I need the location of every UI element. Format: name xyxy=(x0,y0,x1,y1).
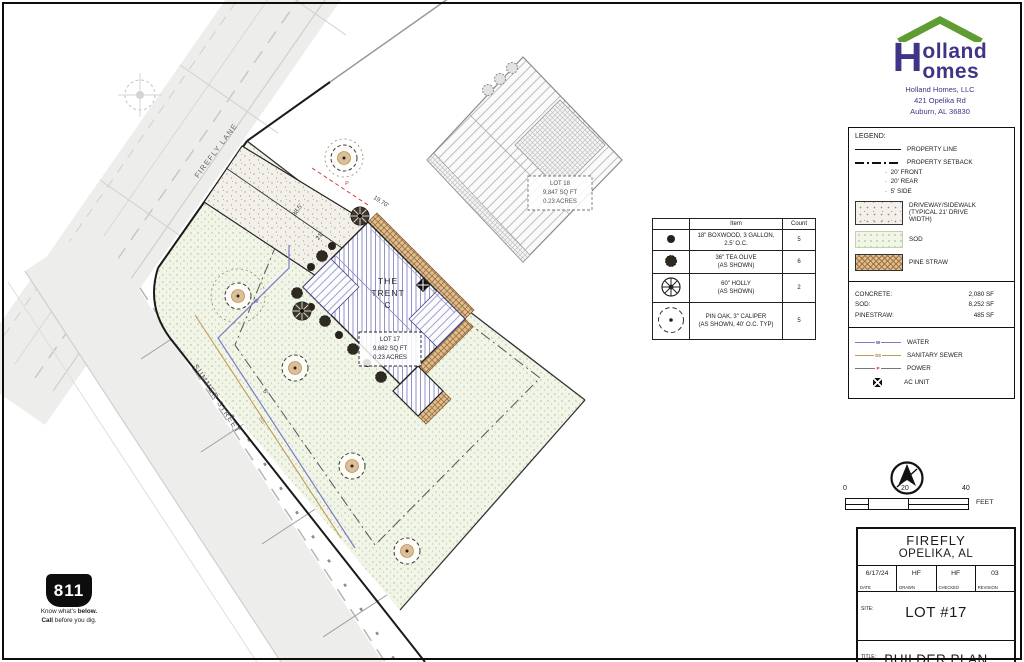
title-row: TITLE: BUILDER PLAN xyxy=(858,652,1014,662)
legend-power: P POWER xyxy=(855,365,1008,372)
company-name: Holland Homes, LLC xyxy=(862,85,1018,96)
svg-text:LOT 18: LOT 18 xyxy=(550,181,571,187)
count-header: Count xyxy=(783,219,816,230)
legend-sewer: SS SANITARY SEWER xyxy=(855,352,1008,359)
pine-straw-swatch xyxy=(855,254,903,271)
logo-wordmark: H olland omes xyxy=(862,41,1018,81)
company-street: 421 Opelika Rd xyxy=(862,96,1018,107)
scale-bar-box xyxy=(845,498,969,510)
scale-bar: 0 20 40 FEET xyxy=(836,485,1020,517)
svg-text:0.23 ACRES: 0.23 ACRES xyxy=(373,355,407,361)
area-row: PINESTRAW:485 SF xyxy=(855,312,1008,319)
svg-text:0.23 ACRES: 0.23 ACRES xyxy=(543,199,577,205)
holland-homes-logo: H olland omes Holland Homes, LLC 421 Ope… xyxy=(862,16,1018,118)
lot17-tag: LOT 17 9,682 SQ FT 0.23 ACRES xyxy=(359,332,421,366)
scale-tick-0: 0 xyxy=(843,485,847,492)
area-row: SOD:8,252 SF xyxy=(855,301,1008,308)
svg-text:LOT 17: LOT 17 xyxy=(380,337,401,343)
table-row: 60" HOLLY (AS SHOWN) 2 xyxy=(653,274,816,303)
scale-tick-40: 40 xyxy=(962,485,970,492)
drawn-cell: HF DRAWN xyxy=(897,566,936,591)
legend-ac: AC UNIT xyxy=(855,378,1008,387)
legend-property-setback: PROPERTY SETBACK xyxy=(855,159,1008,166)
legend-water: W WATER xyxy=(855,339,1008,346)
svg-text:C: C xyxy=(384,300,391,310)
legend-symbols-section: LEGEND: PROPERTY LINE PROPERTY SETBACK ·… xyxy=(848,127,1015,283)
power-marker: P xyxy=(345,181,349,187)
legend-property-line: PROPERTY LINE xyxy=(855,146,1008,153)
legend-heading: LEGEND: xyxy=(855,133,1008,140)
company-city: Auburn, AL 36830 xyxy=(862,107,1018,118)
checked-cell: HF CHECKED xyxy=(937,566,976,591)
boxwood-icon xyxy=(664,232,678,246)
logo-h: H xyxy=(893,41,923,75)
project-name-row: FIREFLY OPELIKA, AL xyxy=(858,529,1014,566)
legend-areas-section: CONCRETE:2,080 SF SOD:8,252 SF PINESTRAW… xyxy=(848,281,1015,328)
title-block: FIREFLY OPELIKA, AL 6/17/24 DATE HF DRAW… xyxy=(856,527,1016,662)
water-marker: W xyxy=(253,299,259,305)
svg-text:TRENT: TRENT xyxy=(371,288,404,298)
legend: LEGEND: PROPERTY LINE PROPERTY SETBACK ·… xyxy=(848,127,1015,399)
property-line-swatch xyxy=(855,149,901,150)
ac-unit-swatch xyxy=(873,378,882,387)
setback-bullets: · 20' FRONT · 20' REAR · 5' SIDE xyxy=(885,169,1008,195)
svg-text:9,682 SQ FT: 9,682 SQ FT xyxy=(373,346,408,352)
svg-text:9,847 SQ FT: 9,847 SQ FT xyxy=(543,190,578,196)
area-row: CONCRETE:2,080 SF xyxy=(855,291,1008,298)
title-label: TITLE: xyxy=(861,654,876,660)
site-row: SITE: LOT #17 xyxy=(858,604,1014,641)
legend-driveway: DRIVEWAY/SIDEWALK (TYPICAL 21' DRIVE WID… xyxy=(855,201,1008,225)
call-811-logo: 811 Know what's below. Call before you d… xyxy=(28,574,110,625)
table-row: PIN OAK, 3" CALIPER (AS SHOWN, 40' O.C. … xyxy=(653,303,816,340)
site-value: LOT #17 xyxy=(858,604,1014,621)
setback-line-swatch xyxy=(855,162,901,164)
tea-olive-icon xyxy=(663,253,679,269)
legend-pine-straw: PINE STRAW xyxy=(855,254,1008,271)
table-row: 18" BOXWOOD, 3 GALLON, 2.5' O.C. 5 xyxy=(653,230,816,251)
project-location: OPELIKA, AL xyxy=(858,548,1014,560)
legend-sod: SOD xyxy=(855,231,1008,248)
revision-cell: 03 REVISION xyxy=(976,566,1014,591)
811-badge-icon: 811 xyxy=(46,574,92,607)
driveway-swatch xyxy=(855,201,903,225)
date-cell: 6/17/24 DATE xyxy=(858,566,897,591)
item-header: Item xyxy=(690,219,783,230)
sheet-title: BUILDER PLAN xyxy=(858,652,1014,662)
power-line-swatch: P xyxy=(855,366,901,371)
pin-oak-icon xyxy=(656,305,686,335)
holly-icon xyxy=(660,276,682,298)
project-name: FIREFLY xyxy=(858,533,1014,548)
plan-sheet: W SS P 38.5' 21' 19.70' 6' FIREFLY LANE … xyxy=(0,0,1024,662)
revision-row: 6/17/24 DATE HF DRAWN HF CHECKED 03 REVI… xyxy=(858,566,1014,592)
sewer-line-swatch: SS xyxy=(855,353,901,358)
scale-tick-20: 20 xyxy=(901,485,909,492)
plant-schedule-table: Item Count 18" BOXWOOD, 3 GALLON, 2.5' O… xyxy=(652,218,816,340)
table-row: 36" TEA OLIVE (AS SHOWN) 6 xyxy=(653,251,816,274)
site-label: SITE: xyxy=(861,606,874,612)
table-header-row: Item Count xyxy=(653,219,816,230)
legend-utilities-section: W WATER SS SANITARY SEWER P POWER AC UNI… xyxy=(848,327,1015,399)
svg-text:THE: THE xyxy=(378,276,398,286)
sod-swatch xyxy=(855,231,903,248)
svg-text:19.70': 19.70' xyxy=(372,194,390,209)
lot18-tag: LOT 18 9,847 SQ FT 0.23 ACRES xyxy=(528,176,592,210)
811-tagline: Know what's below. Call before you dig. xyxy=(28,607,110,625)
logo-line2: omes xyxy=(922,62,979,82)
water-line-swatch: W xyxy=(855,340,901,345)
logo-line1: olland xyxy=(922,42,987,62)
scale-unit: FEET xyxy=(976,499,993,506)
lot18-house xyxy=(427,57,622,262)
